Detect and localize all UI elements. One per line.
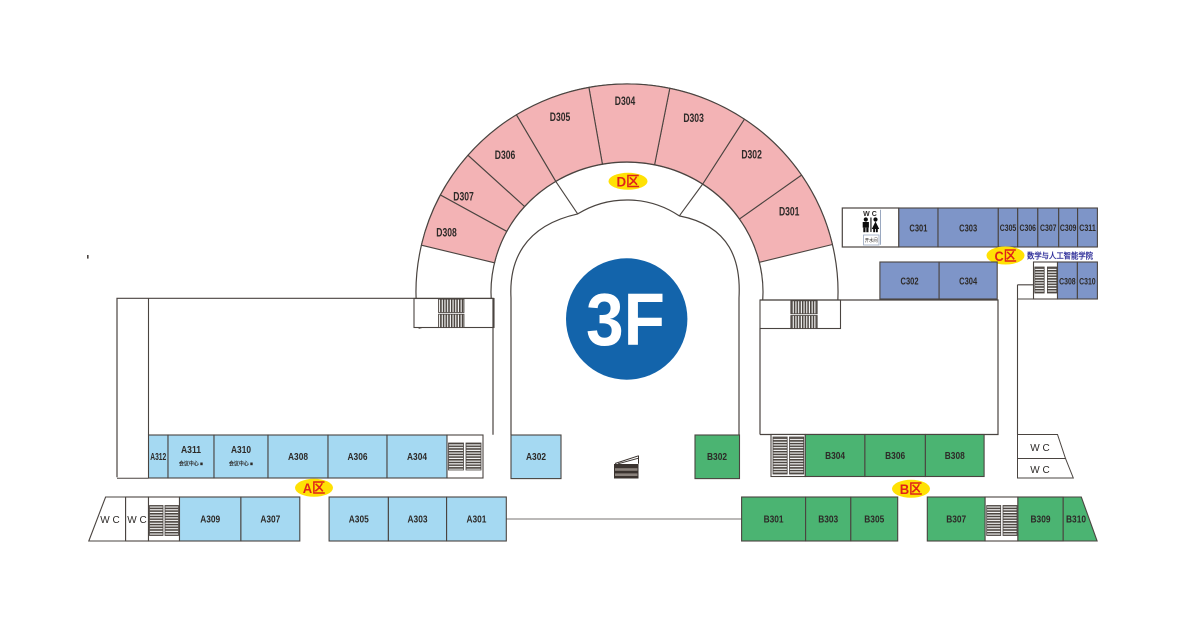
- svg-text:B区: B区: [900, 481, 923, 497]
- svg-text:B303: B303: [818, 514, 838, 526]
- svg-text:B306: B306: [885, 450, 905, 462]
- svg-text:C311: C311: [1079, 223, 1096, 234]
- svg-text:C307: C307: [1040, 223, 1057, 234]
- svg-text:A310: A310: [231, 444, 251, 456]
- svg-text:B307: B307: [946, 514, 966, 526]
- svg-text:B309: B309: [1031, 514, 1051, 526]
- svg-text:D301: D301: [779, 207, 800, 219]
- svg-text:A306: A306: [348, 451, 368, 463]
- svg-text:C308: C308: [1059, 277, 1076, 288]
- svg-text:W C: W C: [1030, 465, 1049, 476]
- svg-text:D308: D308: [436, 228, 457, 240]
- svg-text:D区: D区: [617, 173, 640, 189]
- svg-text:C305: C305: [1000, 223, 1017, 234]
- svg-text:D305: D305: [550, 112, 571, 124]
- svg-text:A303: A303: [408, 514, 428, 526]
- svg-text:A307: A307: [260, 514, 280, 526]
- svg-text:W C: W C: [127, 515, 146, 526]
- svg-text:C301: C301: [909, 223, 927, 234]
- svg-text:C306: C306: [1020, 223, 1037, 234]
- svg-text:C309: C309: [1060, 223, 1077, 234]
- svg-text:B304: B304: [825, 450, 845, 462]
- svg-text:A311: A311: [181, 444, 201, 456]
- svg-text:C302: C302: [901, 277, 919, 288]
- svg-text:A308: A308: [288, 451, 308, 463]
- svg-text:A305: A305: [349, 514, 369, 526]
- svg-text:A区: A区: [303, 480, 326, 496]
- svg-text:C区: C区: [995, 248, 1017, 264]
- svg-text:D303: D303: [683, 113, 704, 125]
- svg-text:B301: B301: [764, 514, 784, 526]
- svg-text:C304: C304: [959, 277, 977, 288]
- svg-text:A302: A302: [526, 451, 546, 463]
- svg-text:数学与人工智能学院: 数学与人工智能学院: [1027, 250, 1093, 260]
- svg-text:B305: B305: [864, 514, 884, 526]
- svg-text:D306: D306: [495, 150, 516, 162]
- svg-text:B302: B302: [707, 451, 727, 463]
- svg-text:3F: 3F: [586, 278, 665, 361]
- svg-text:A312: A312: [150, 451, 166, 463]
- svg-text:会议中心 ■: 会议中心 ■: [179, 460, 203, 468]
- svg-text:A301: A301: [466, 514, 486, 526]
- svg-text:C303: C303: [959, 223, 977, 234]
- svg-text:W C: W C: [100, 515, 119, 526]
- svg-text:A309: A309: [200, 514, 220, 526]
- svg-text:C310: C310: [1079, 277, 1096, 288]
- svg-text:开水间: 开水间: [865, 237, 878, 244]
- svg-text:D307: D307: [453, 192, 474, 204]
- svg-text:A304: A304: [407, 451, 427, 463]
- svg-text:D304: D304: [615, 96, 636, 108]
- svg-text:WC: WC: [863, 211, 879, 218]
- svg-text:B308: B308: [945, 450, 965, 462]
- svg-text:B310: B310: [1066, 514, 1086, 526]
- svg-text:会议中心 ■: 会议中心 ■: [229, 460, 253, 468]
- svg-text:D302: D302: [741, 150, 762, 162]
- svg-text:W C: W C: [1030, 443, 1049, 454]
